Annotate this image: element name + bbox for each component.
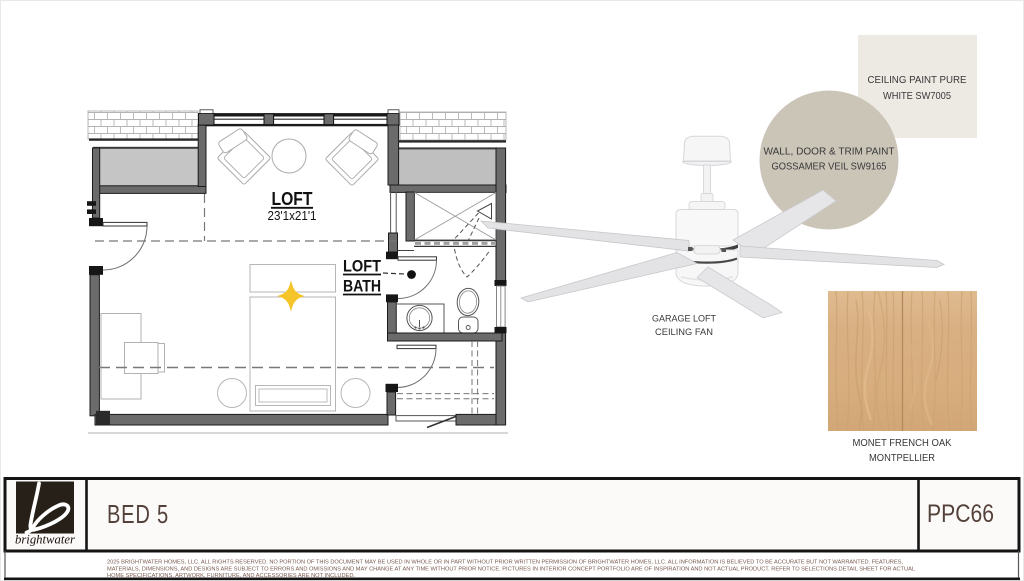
- svg-text:BED 5: BED 5: [107, 499, 169, 529]
- svg-text:GOSSAMER VEIL SW9165: GOSSAMER VEIL SW9165: [772, 161, 887, 173]
- svg-text:CEILING FAN: CEILING FAN: [655, 327, 713, 338]
- svg-text:MONET FRENCH OAK: MONET FRENCH OAK: [853, 437, 952, 449]
- svg-text:2025 BRIGHTWATER HOMES, LLC. A: 2025 BRIGHTWATER HOMES, LLC. ALL RIGHTS …: [107, 559, 903, 565]
- svg-text:BATH: BATH: [343, 277, 381, 296]
- svg-text:23'1x21'1: 23'1x21'1: [268, 208, 317, 223]
- svg-text:LOFT: LOFT: [343, 257, 382, 276]
- svg-text:WHITE SW7005: WHITE SW7005: [883, 90, 951, 102]
- svg-text:CEILING PAINT PURE: CEILING PAINT PURE: [868, 74, 967, 86]
- svg-text:LOFT: LOFT: [272, 189, 313, 209]
- svg-text:GARAGE LOFT: GARAGE LOFT: [652, 314, 716, 325]
- svg-text:MONTPELLIER: MONTPELLIER: [869, 452, 935, 464]
- svg-text:MATERIALS, DIMENSIONS, AND DES: MATERIALS, DIMENSIONS, AND DESIGNS ARE S…: [107, 566, 916, 572]
- svg-text:PPC66: PPC66: [927, 500, 994, 528]
- svg-text:WALL, DOOR & TRIM PAINT: WALL, DOOR & TRIM PAINT: [764, 146, 896, 158]
- svg-text:brightwater: brightwater: [15, 533, 75, 547]
